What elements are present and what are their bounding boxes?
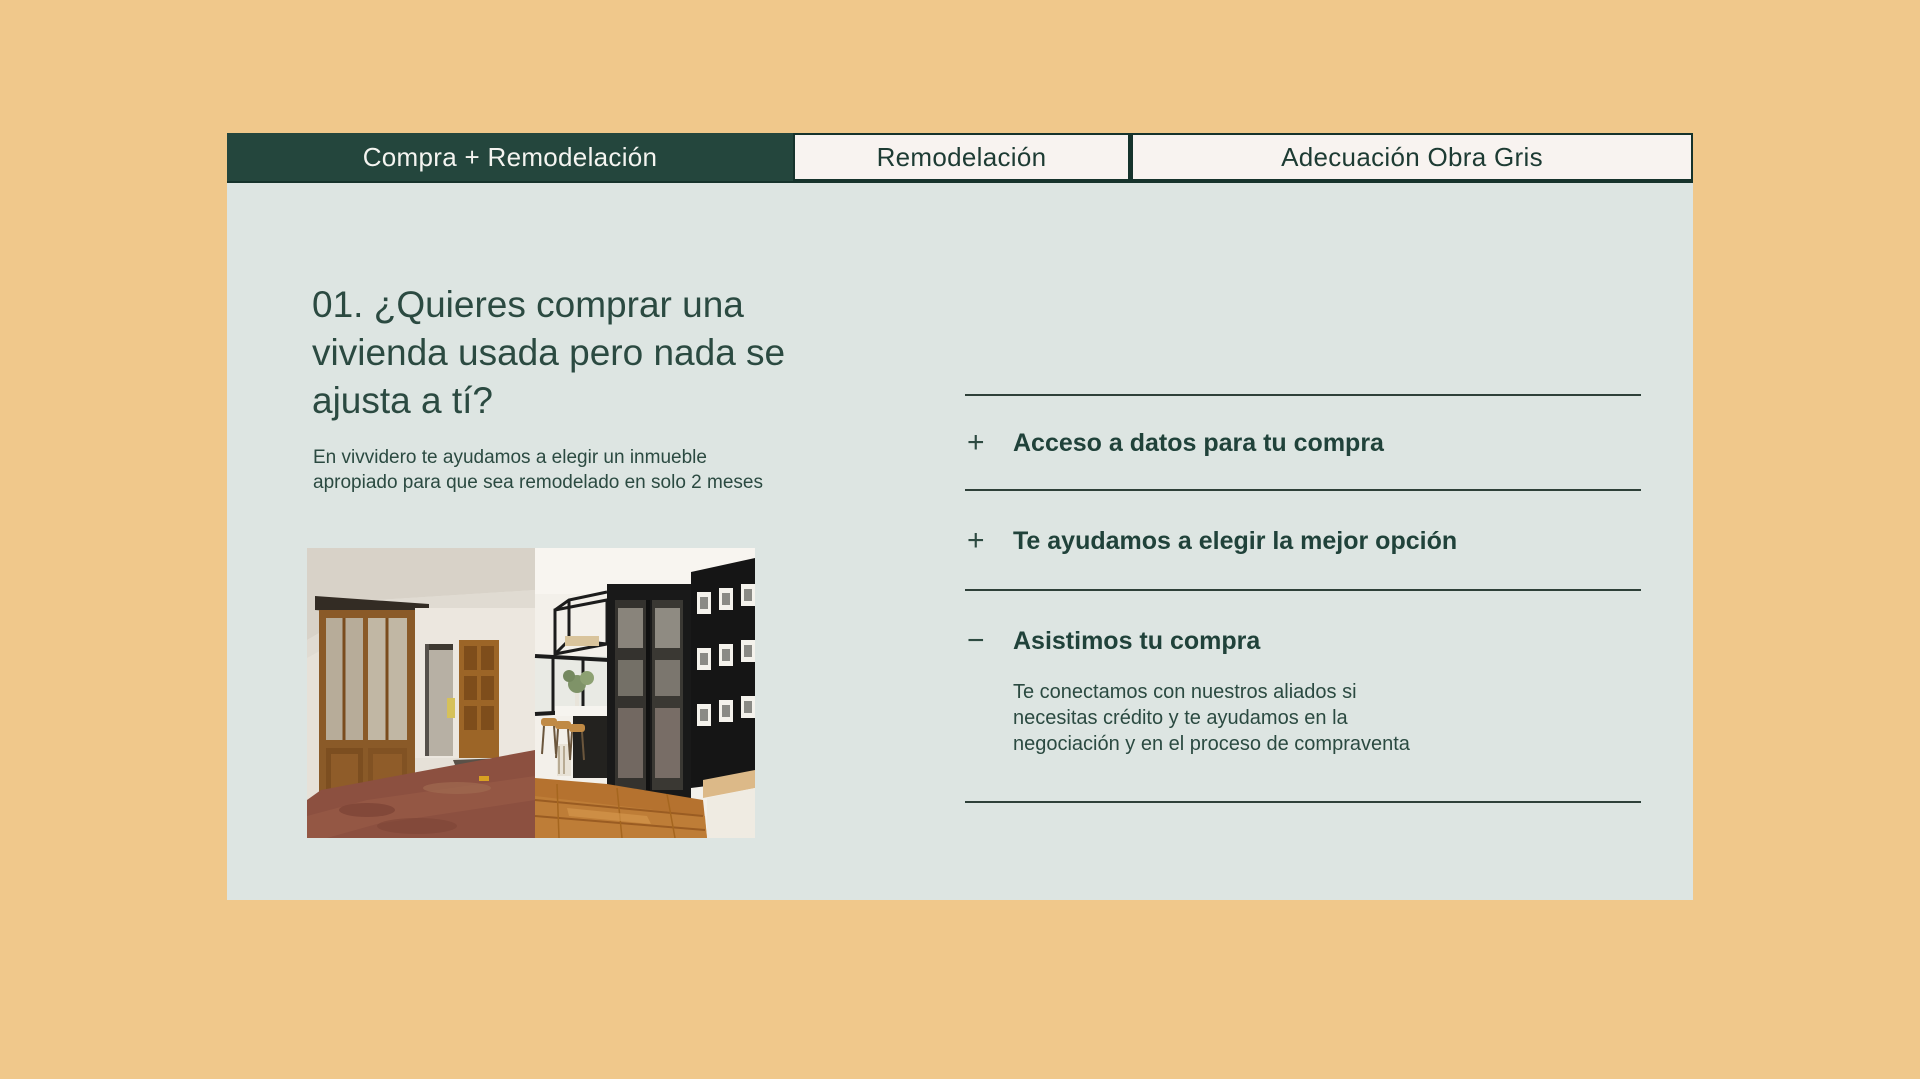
plus-icon[interactable]: +	[967, 427, 993, 459]
tab-adecuacion-obra-gris[interactable]: Adecuación Obra Gris	[1130, 133, 1693, 181]
accordion-expanded-body: Te conectamos con nuestros aliados si ne…	[1013, 679, 1433, 757]
accordion-header-acceso-datos[interactable]: + Acceso a datos para tu compra	[965, 427, 1641, 459]
section-subheading: En vivvidero te ayudamos a elegir un inm…	[313, 445, 783, 495]
accordion-item-acceso-datos: + Acceso a datos para tu compra	[965, 394, 1641, 489]
card-body: 01. ¿Quieres comprar una vivienda usada …	[227, 183, 1693, 900]
accordion-header-elegir-mejor-opcion[interactable]: + Te ayudamos a elegir la mejor opción	[965, 525, 1641, 557]
accordion-item-asistimos-compra: − Asistimos tu compra Te conectamos con …	[965, 589, 1641, 801]
services-accordion: + Acceso a datos para tu compra + Te ayu…	[965, 394, 1641, 803]
accordion-title: Te ayudamos a elegir la mejor opción	[1013, 525, 1457, 557]
interior-before-after-photo	[307, 548, 755, 838]
accordion-title: Asistimos tu compra	[1013, 625, 1260, 657]
minus-icon[interactable]: −	[967, 625, 993, 657]
main-card: Compra + Remodelación Remodelación Adecu…	[227, 133, 1693, 900]
tab-label: Compra + Remodelación	[363, 142, 658, 173]
plus-icon[interactable]: +	[967, 525, 993, 557]
tab-label: Remodelación	[877, 142, 1047, 173]
tab-label: Adecuación Obra Gris	[1281, 142, 1543, 173]
section-heading: 01. ¿Quieres comprar una vivienda usada …	[312, 281, 792, 425]
tab-bar: Compra + Remodelación Remodelación Adecu…	[227, 133, 1693, 183]
accordion-header-asistimos-compra[interactable]: − Asistimos tu compra	[965, 625, 1641, 657]
accordion-item-elegir-mejor-opcion: + Te ayudamos a elegir la mejor opción	[965, 489, 1641, 589]
tab-compra-remodelacion[interactable]: Compra + Remodelación	[227, 133, 793, 181]
tab-remodelacion[interactable]: Remodelación	[793, 133, 1130, 181]
accordion-title: Acceso a datos para tu compra	[1013, 427, 1384, 459]
page-background: { "colors": { "page_background": "#f0c88…	[0, 0, 1920, 1079]
